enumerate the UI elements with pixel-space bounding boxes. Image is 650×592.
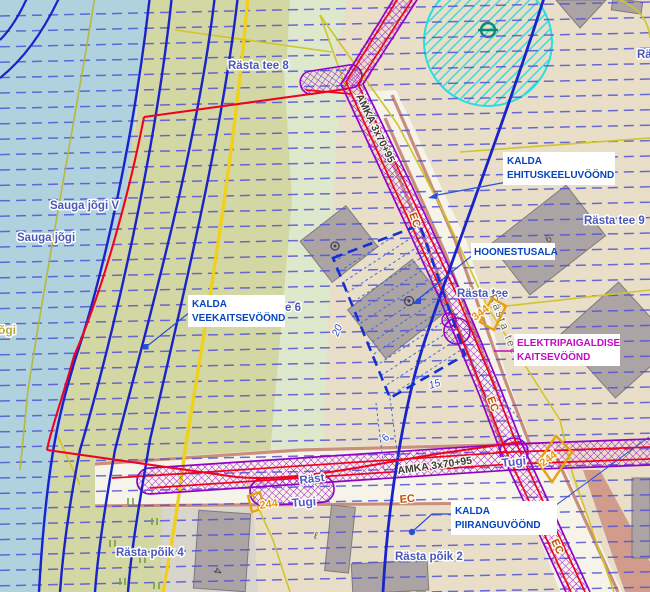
callout-elektripaigaldise: ELEKTRIPAIGALDISE KAITSEVÖÖND [514, 334, 620, 366]
street-label-partial: e 6 [285, 302, 301, 314]
cable-ec-label: EC [399, 493, 415, 506]
callout-text: HOONESTUSALA [474, 247, 558, 258]
callout-hoonestusala: HOONESTUSALA [471, 243, 558, 260]
leader-dot [409, 529, 415, 535]
callout-text: KALDA [507, 156, 542, 167]
street-label: Rästa tee 9 [584, 215, 645, 227]
callout-text: KAITSEVÖÖND [517, 350, 590, 363]
river-label-partial: õgi [0, 323, 16, 337]
callout-text: KALDA [192, 299, 227, 310]
callout-ehituskeeluvoond: KALDA EHITUSKEELUVÖÖND [503, 152, 615, 185]
street-label-partial: Rä [637, 49, 650, 61]
callout-piiranguvoond: KALDA PIIRANGUVÖÖND [451, 501, 557, 535]
callout-text: VEEKAITSEVÖÖND [192, 311, 285, 324]
leader-dot [143, 344, 149, 350]
callout-text: PIIRANGUVÖÖND [455, 518, 541, 531]
callout-text: ELEKTRIPAIGALDISE [517, 338, 620, 349]
street-label: Rästa põik 4 [116, 547, 184, 559]
street-label: Rästa põik 2 [395, 551, 463, 563]
map-canvas[interactable]: Rästa tee 8 Rästa tee 9 Rä Sauga jõgi V … [0, 0, 650, 592]
river-label: Sauga jõgi [17, 232, 75, 244]
callout-text: EHITUSKEELUVÖÖND [507, 168, 614, 181]
building [632, 478, 650, 558]
support-label: Tugi [291, 494, 316, 510]
callout-text: KALDA [455, 506, 490, 517]
callout-veekaitsevoond: KALDA VEEKAITSEVÖÖND [188, 295, 285, 327]
planning-map: Rästa tee 8 Rästa tee 9 Rä Sauga jõgi V … [0, 0, 650, 592]
building [351, 560, 428, 592]
river-label: Sauga jõgi V [50, 200, 119, 212]
street-label: Rästa tee 8 [228, 60, 289, 72]
support-label: Tugi [501, 454, 527, 470]
